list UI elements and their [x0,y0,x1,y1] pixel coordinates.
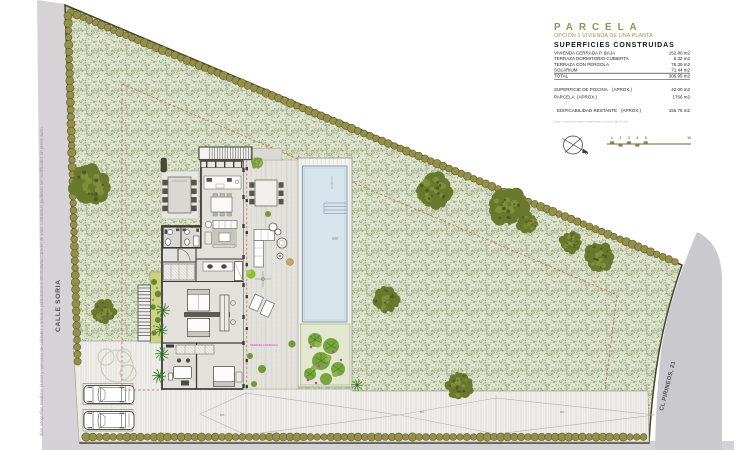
svg-text:306.95 m2: 306.95 m2 [669,74,691,79]
svg-text:(APROX.): (APROX.) [621,108,642,113]
svg-text:4: 4 [637,136,639,140]
svg-text:TOTAL: TOTAL [554,74,569,79]
svg-text:PARCELA: PARCELA [554,22,643,33]
svg-text:(APROX.): (APROX.) [612,87,633,92]
svg-text:EDIFICABILIDAD RESTANTE: EDIFICABILIDAD RESTANTE [557,108,617,113]
svg-text:6%: 6% [220,413,225,417]
svg-text:TERRAZA DORMITORIO CUBIERTA: TERRAZA DORMITORIO CUBIERTA [554,56,629,61]
svg-text:76.39 m2: 76.39 m2 [671,62,690,67]
svg-text:SUPERFICIES CONSTRUIDAS: SUPERFICIES CONSTRUIDAS [554,42,675,49]
svg-text:6%: 6% [560,410,565,414]
svg-text:152.80 m2: 152.80 m2 [669,51,691,56]
svg-text:días, infografías, tendidos, p: días, infografías, tendidos, planos y me… [39,126,44,436]
svg-text:SUPERFICIE DE PISCINA: SUPERFICIE DE PISCINA [554,87,608,92]
svg-text:1: 1 [611,136,613,140]
svg-text:42.00 m2: 42.00 m2 [671,87,690,92]
svg-text:6%: 6% [420,410,425,414]
svg-text:6.32 m2: 6.32 m2 [674,56,691,61]
svg-text:SOLARIUM: SOLARIUM [330,176,333,189]
svg-text:71.44 m2: 71.44 m2 [671,68,690,73]
svg-text:VIVIENDA CERRADA P. BAJA: VIVIENDA CERRADA P. BAJA [554,51,615,56]
svg-text:3: 3 [628,136,630,140]
svg-text:TERRAZA C PERGOLA: TERRAZA C PERGOLA [250,343,278,347]
svg-text:SOLARIUM: SOLARIUM [554,68,578,73]
svg-text:10: 10 [687,136,691,140]
svg-text:1766 m2: 1766 m2 [672,95,690,100]
svg-text:CALLE SORIA: CALLE SORIA [55,279,62,332]
svg-text:156.75 m2: 156.75 m2 [669,108,691,113]
svg-text:PARCELA: PARCELA [554,95,575,100]
svg-text:(APROX.): (APROX.) [577,95,598,100]
svg-text:5: 5 [645,136,647,140]
svg-text:Cotas y superficies aproximada: Cotas y superficies aproximadas segun pr… [553,120,628,124]
svg-text:2: 2 [620,136,622,140]
svg-text:TERRAZA CON PÉRGOLA: TERRAZA CON PÉRGOLA [554,61,609,67]
svg-text:OPCIÓN 1 VIVIENDA DE UNA PLANT: OPCIÓN 1 VIVIENDA DE UNA PLANTA [554,32,653,39]
